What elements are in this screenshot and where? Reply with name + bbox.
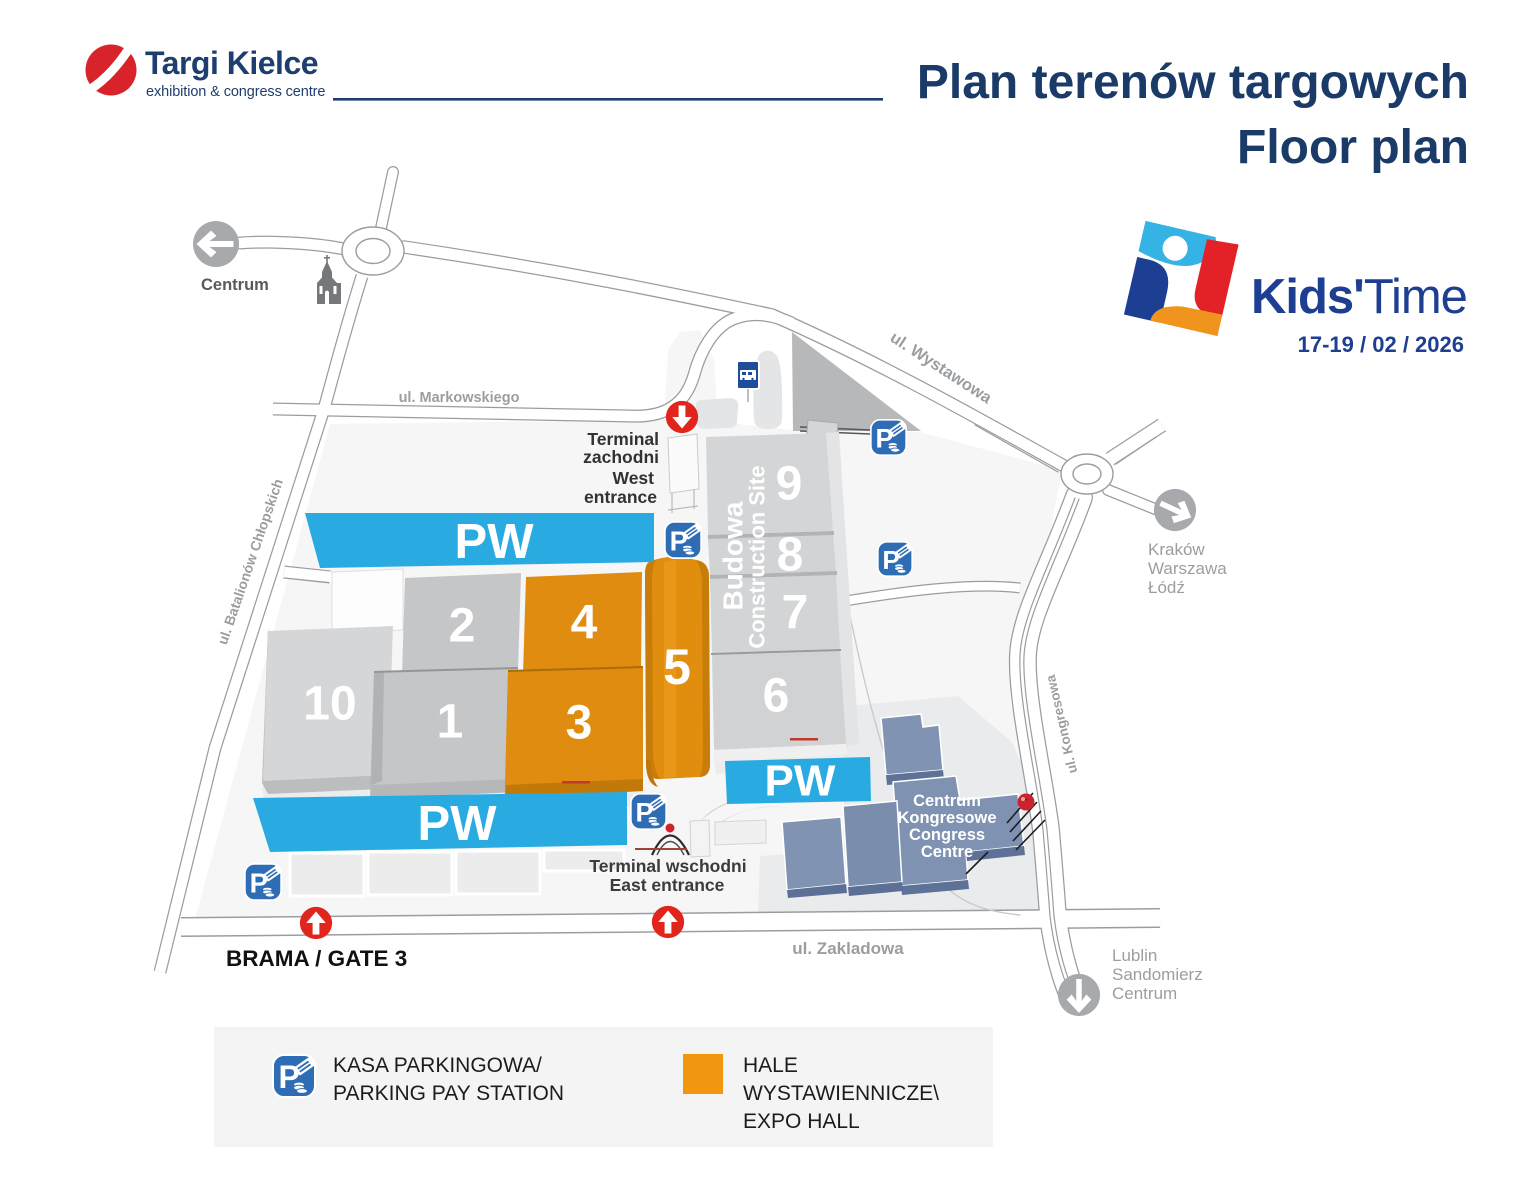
svg-text:Centrum: Centrum <box>201 276 269 294</box>
svg-text:PARKING PAY STATION: PARKING PAY STATION <box>333 1082 564 1105</box>
svg-text:EXPO HALL: EXPO HALL <box>743 1110 860 1133</box>
svg-text:17-19 / 02 / 2026: 17-19 / 02 / 2026 <box>1298 332 1464 357</box>
svg-text:HALE: HALE <box>743 1054 798 1077</box>
svg-text:5: 5 <box>663 639 691 695</box>
svg-text:PW: PW <box>418 797 498 851</box>
svg-text:Congress: Congress <box>909 826 985 844</box>
svg-text:Sandomierz: Sandomierz <box>1112 965 1203 984</box>
svg-text:ul. Zakladowa: ul. Zakladowa <box>792 939 904 958</box>
svg-text:East entrance: East entrance <box>610 875 725 895</box>
svg-text:10: 10 <box>303 678 356 731</box>
svg-text:BRAMA / GATE 3: BRAMA / GATE 3 <box>226 946 407 971</box>
svg-text:Construction Site: Construction Site <box>745 465 770 648</box>
svg-text:KASA PARKINGOWA/: KASA PARKINGOWA/ <box>333 1054 542 1077</box>
svg-text:West: West <box>613 468 655 488</box>
svg-text:Łódź: Łódź <box>1148 578 1185 597</box>
svg-text:Lublin: Lublin <box>1112 946 1157 965</box>
svg-text:7: 7 <box>782 587 809 640</box>
svg-text:1: 1 <box>437 696 464 749</box>
svg-text:9: 9 <box>776 458 803 511</box>
svg-text:Warszawa: Warszawa <box>1148 559 1227 578</box>
svg-text:ul. Markowskiego: ul. Markowskiego <box>399 390 520 406</box>
svg-text:6: 6 <box>763 670 790 723</box>
svg-text:Kongresowe: Kongresowe <box>897 809 996 827</box>
svg-text:Plan terenów targowych: Plan terenów targowych <box>917 56 1469 109</box>
svg-text:Kraków: Kraków <box>1148 540 1205 559</box>
svg-text:2: 2 <box>449 600 476 653</box>
svg-text:4: 4 <box>571 597 598 650</box>
svg-text:WYSTAWIENNICZE\: WYSTAWIENNICZE\ <box>743 1082 939 1105</box>
svg-text:Terminal wschodni: Terminal wschodni <box>589 856 746 876</box>
svg-text:entrance: entrance <box>584 487 657 507</box>
svg-text:8: 8 <box>777 529 804 582</box>
svg-text:Targi Kielce: Targi Kielce <box>145 45 318 81</box>
svg-text:Centre: Centre <box>921 843 973 861</box>
svg-text:Terminal: Terminal <box>587 429 659 449</box>
svg-text:exhibition & congress centre: exhibition & congress centre <box>146 84 325 100</box>
svg-text:PW: PW <box>765 757 836 806</box>
svg-text:Floor plan: Floor plan <box>1237 121 1469 174</box>
svg-text:Centrum: Centrum <box>913 792 981 810</box>
svg-text:3: 3 <box>566 697 593 750</box>
svg-text:PW: PW <box>455 515 535 569</box>
svg-text:Centrum: Centrum <box>1112 984 1177 1003</box>
svg-text:Kids'Time: Kids'Time <box>1251 270 1467 324</box>
svg-text:zachodni: zachodni <box>583 447 659 467</box>
